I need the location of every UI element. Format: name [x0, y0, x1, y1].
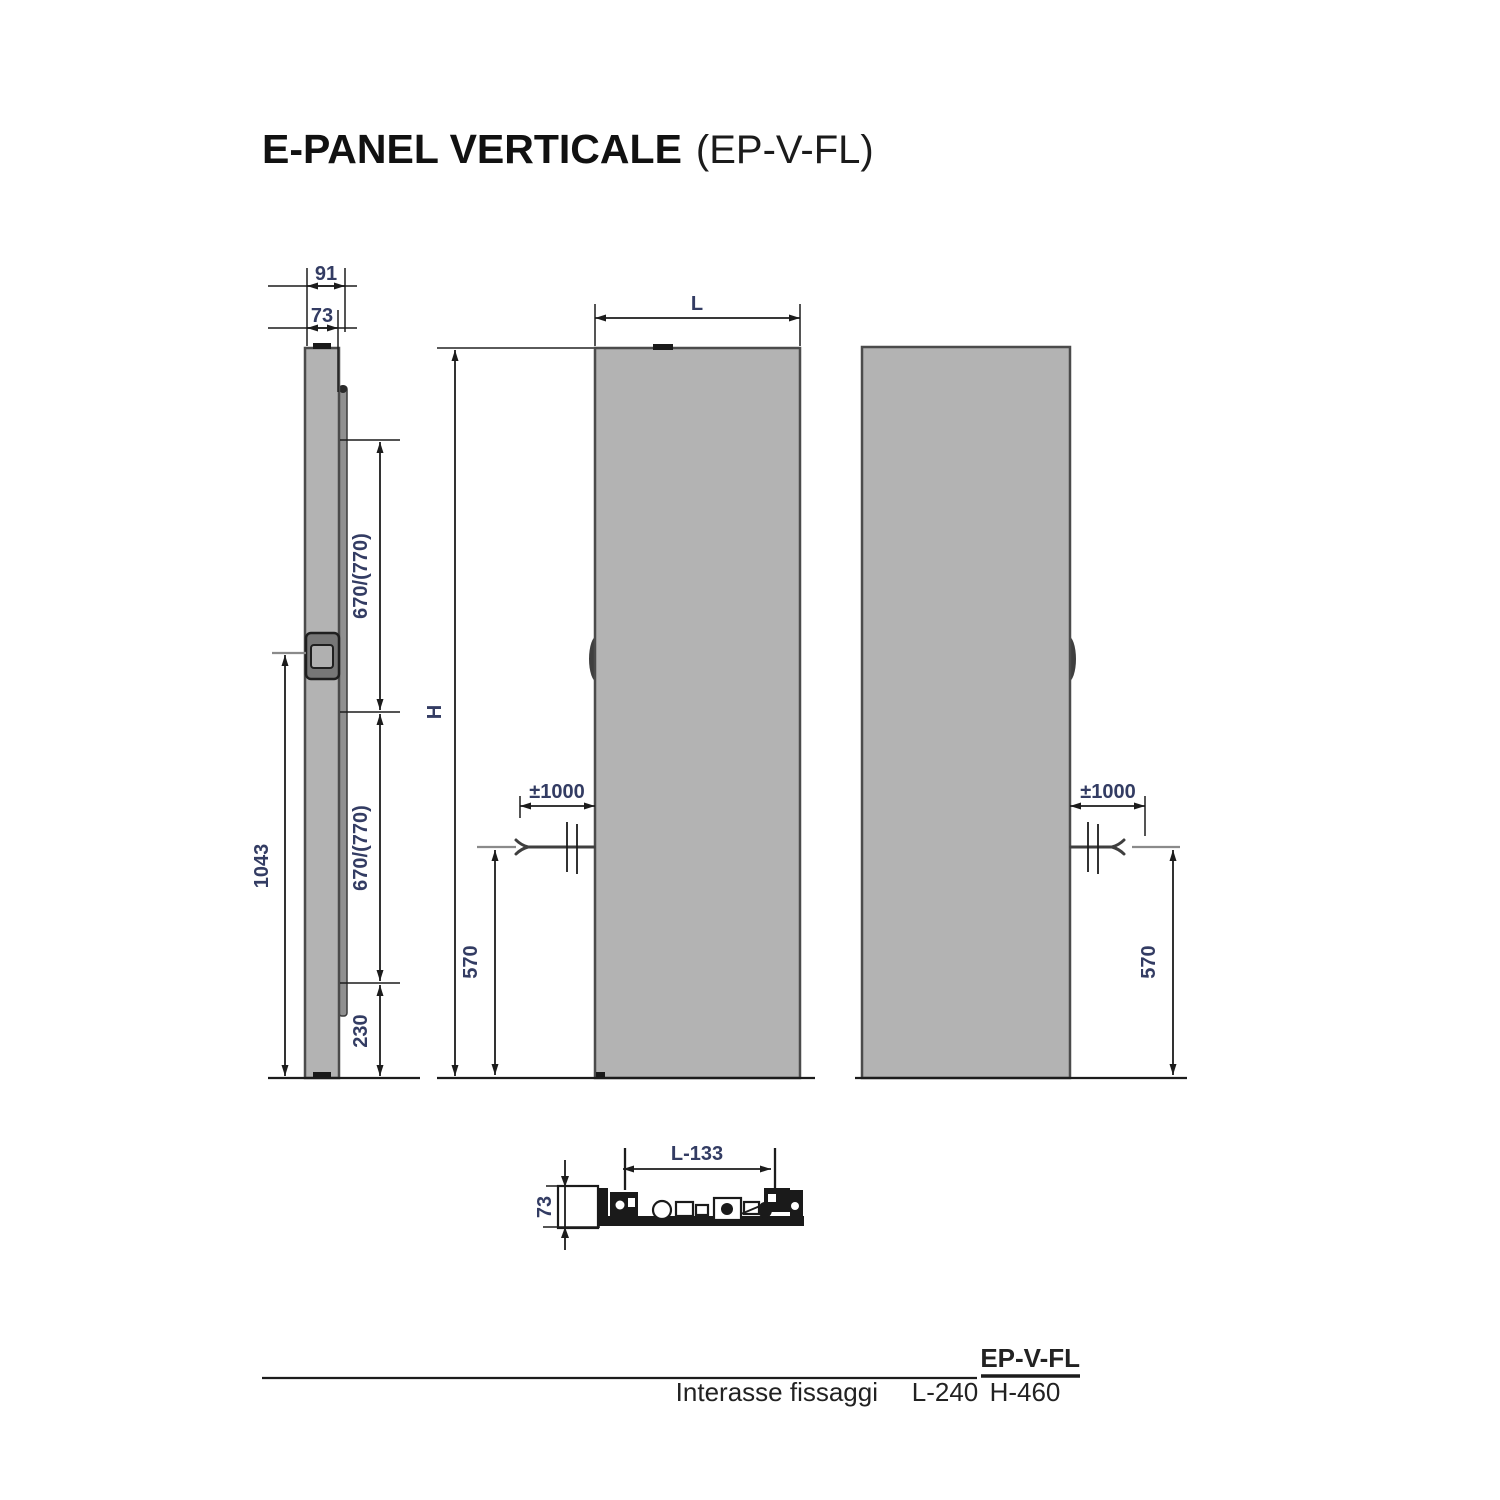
power-cable-left: [516, 822, 594, 874]
dim-bracket-spacing: L-133: [623, 1143, 771, 1169]
dim-span-upper: 670/(770): [350, 442, 380, 710]
dim-bracket-spacing-label: L-133: [671, 1143, 723, 1165]
page-title-main: E-PANEL VERTICALE: [262, 126, 682, 172]
dim-height-label: H: [424, 705, 446, 719]
power-cable-right: [1071, 822, 1124, 874]
side-view: 91 73 670/(770) 670/(770) 230: [251, 263, 420, 1078]
dim-height: H: [424, 348, 594, 1076]
panel-bottom-tick-left: [596, 1072, 605, 1077]
side-control-knob: [306, 633, 339, 679]
dim-width: L: [595, 293, 800, 346]
front-view-left: L H ±1000 570: [424, 293, 815, 1078]
dim-cable-length-right: ±1000: [1070, 781, 1145, 836]
dim-cable-length-left: ±1000: [520, 781, 595, 818]
page-title-code: (EP-V-FL): [696, 128, 874, 172]
dim-bottom-clearance: 230: [350, 985, 380, 1076]
table-l-value: L-240: [912, 1377, 979, 1407]
table-h-value: H-460: [990, 1377, 1061, 1407]
spec-table: EP-V-FL Interasse fissaggi L-240 H-460: [262, 1343, 1080, 1407]
front-view-right: ±1000 570: [855, 347, 1187, 1078]
dim-cable-length-left-label: ±1000: [529, 781, 584, 803]
dim-depth-panel-label: 73: [311, 305, 333, 327]
table-row-label: Interasse fissaggi: [676, 1377, 878, 1407]
dim-cable-height-right: 570: [1132, 847, 1180, 1075]
radiator-dimension-diagram: E-PANEL VERTICALE(EP-V-FL) 91 73: [0, 0, 1500, 1500]
page-title: E-PANEL VERTICALE(EP-V-FL): [262, 126, 874, 172]
dim-width-label: L: [691, 293, 703, 315]
dim-span-lower: 670/(770): [350, 714, 380, 981]
front-panel-right: [862, 347, 1070, 1078]
section-left-box: [558, 1186, 598, 1228]
dim-knob-height: 1043: [251, 653, 306, 1076]
section-view: L-133 73: [534, 1143, 804, 1250]
dim-bottom-clearance-label: 230: [350, 1014, 372, 1047]
dim-cable-height-left-label: 570: [460, 945, 482, 978]
dim-section-depth-label: 73: [534, 1196, 556, 1218]
technical-drawing-page: E-PANEL VERTICALE(EP-V-FL) 91 73: [0, 0, 1500, 1500]
side-panel-body: [305, 348, 339, 1078]
front-panel-left: [595, 348, 800, 1078]
dim-knob-height-label: 1043: [251, 844, 273, 889]
dim-span-lower-label: 670/(770): [350, 805, 372, 891]
section-valve-circle: [653, 1201, 671, 1219]
panel-top-vent-left: [653, 344, 673, 350]
dim-cable-height-left: 570: [460, 847, 516, 1075]
dim-cable-height-right-label: 570: [1138, 945, 1160, 978]
cable-plug-right: [1105, 840, 1124, 854]
dim-cable-length-right-label: ±1000: [1080, 781, 1135, 803]
table-model-header: EP-V-FL: [980, 1343, 1080, 1373]
dim-span-upper-label: 670/(770): [350, 533, 372, 619]
side-panel-top-cap: [313, 343, 331, 349]
dim-depth-total-label: 91: [315, 263, 337, 285]
side-panel-bottom-cap: [313, 1072, 331, 1077]
cable-plug-left: [516, 840, 536, 854]
